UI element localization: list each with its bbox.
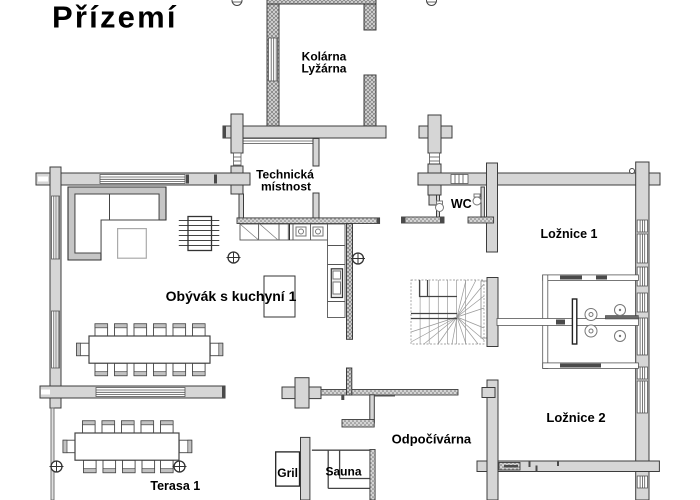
svg-text:místnost: místnost	[261, 179, 311, 193]
svg-text:Gril: Gril	[277, 466, 298, 480]
svg-text:Přízemí: Přízemí	[52, 0, 178, 35]
svg-text:WC: WC	[451, 197, 472, 211]
svg-text:Lyžárna: Lyžárna	[302, 61, 347, 75]
svg-text:Ložnice 1: Ložnice 1	[541, 227, 598, 241]
svg-text:Obývák s kuchyní 1: Obývák s kuchyní 1	[166, 288, 297, 304]
svg-text:Ložnice 2: Ložnice 2	[546, 410, 605, 425]
svg-text:Terasa 1: Terasa 1	[150, 479, 200, 493]
svg-text:Sauna: Sauna	[325, 465, 361, 479]
svg-text:Odpočívárna: Odpočívárna	[392, 432, 472, 447]
